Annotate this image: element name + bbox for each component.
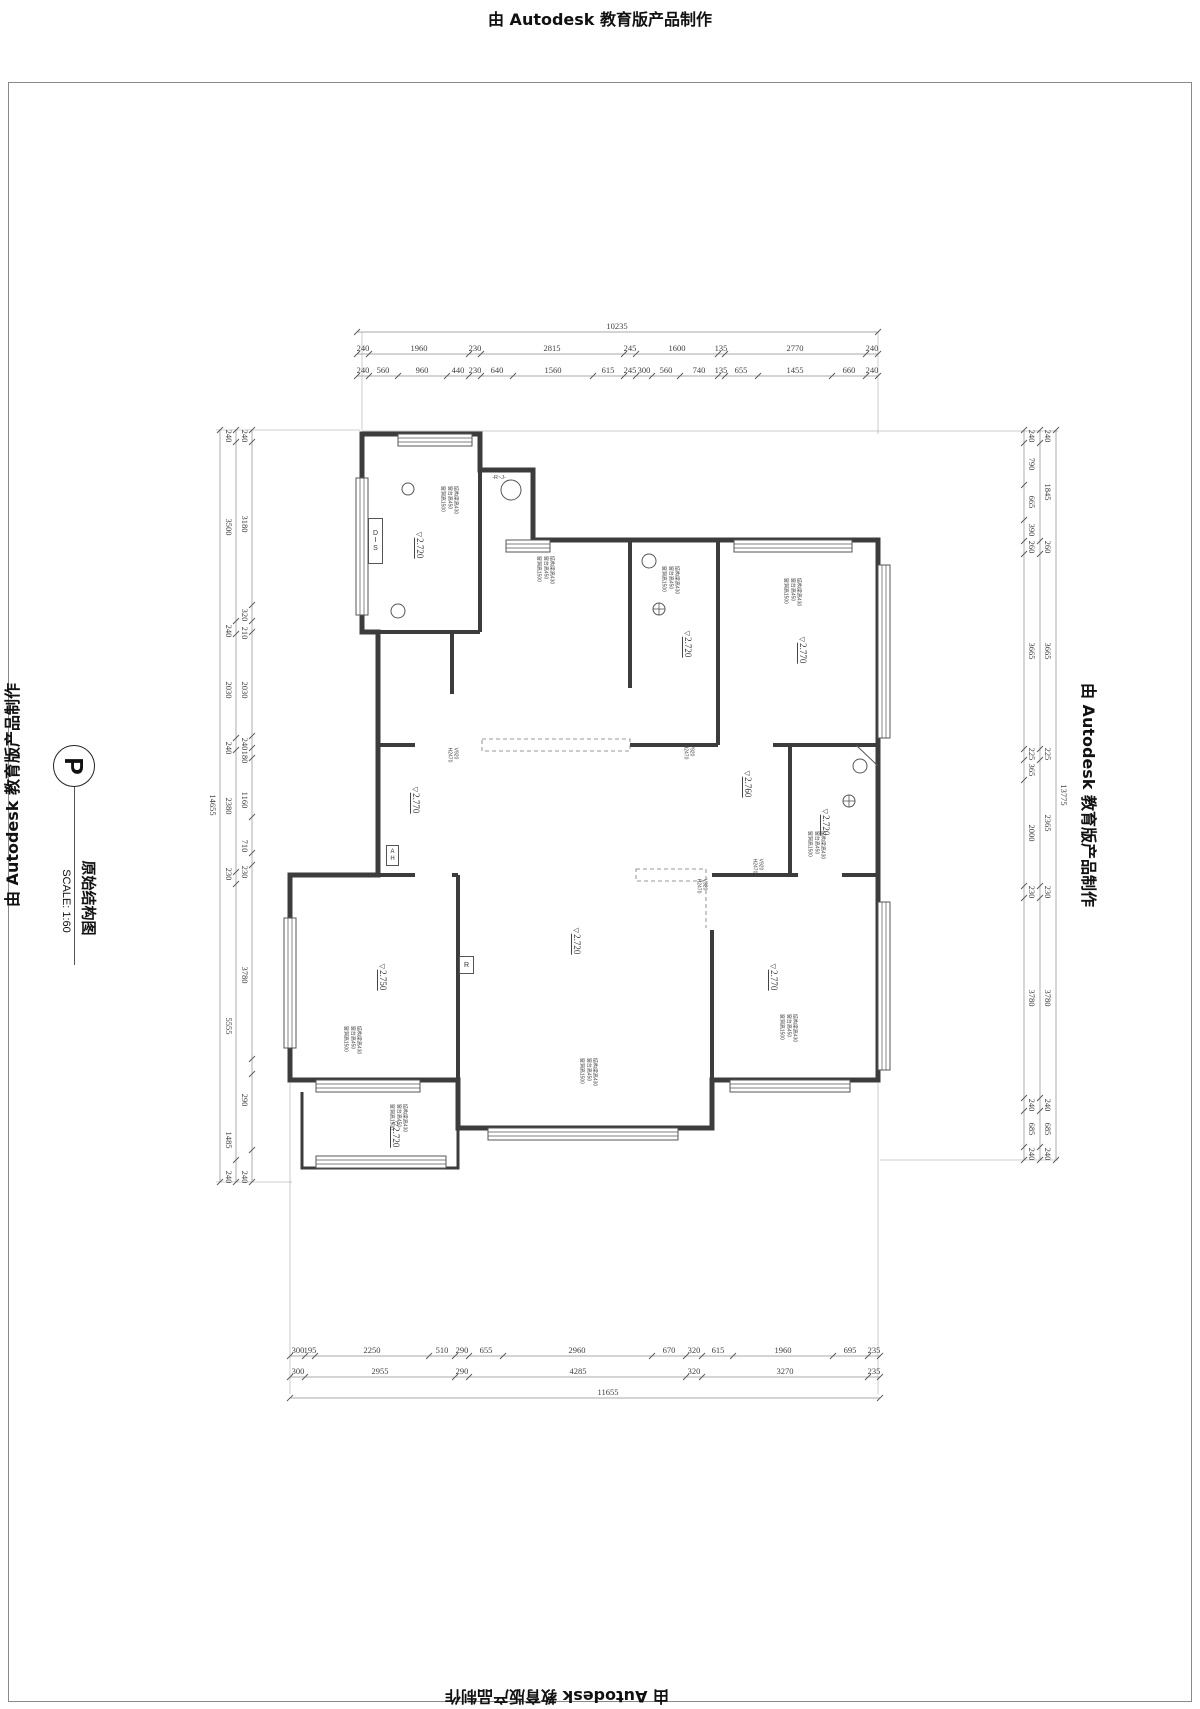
drawing-title: 原始结构图 — [79, 860, 100, 935]
floor-plan-canvas — [0, 0, 1200, 1709]
dimension-label: 245 — [624, 365, 637, 375]
dimension-label: 300 — [292, 1345, 305, 1355]
window — [398, 434, 472, 446]
dimension-label: 1485 — [224, 1132, 234, 1149]
dimension-label: 210 — [240, 627, 250, 640]
window-annotation: 结构梁高430窗台高450窗洞高1500 — [389, 1104, 408, 1132]
title-block-badge: P — [53, 745, 95, 787]
dimension-label: 225 — [1027, 748, 1037, 761]
dimension-label: 230 — [240, 866, 250, 879]
window — [878, 565, 890, 738]
dimension-label: 3665 — [1043, 643, 1053, 660]
dimension-label: 240 — [240, 1171, 250, 1184]
dimension-label: 685 — [1027, 1123, 1037, 1136]
dimension-label: 240 — [1027, 1099, 1037, 1112]
watermark-right: 由 Autodesk 教育版产品制作 — [1078, 683, 1102, 907]
dimension-label: 320 — [688, 1345, 701, 1355]
dimension-label: 615 — [712, 1345, 725, 1355]
fixture-line — [856, 745, 878, 766]
dimension-label: 660 — [843, 365, 856, 375]
dimension-label: 2365 — [1043, 815, 1053, 832]
dimension-label: 290 — [456, 1366, 469, 1376]
dimension-label: 240 — [866, 365, 879, 375]
dimension-label: 685 — [1043, 1123, 1053, 1136]
dimension-label: 14655 — [208, 794, 218, 815]
dimension-label: 230 — [1027, 886, 1037, 899]
window — [316, 1080, 420, 1092]
dimension-label: 240 — [1043, 1148, 1053, 1161]
level-value: 2.760 — [742, 777, 753, 797]
fixture-circle — [402, 483, 414, 495]
dimension-label: 655 — [735, 365, 748, 375]
dimension-label: 2030 — [224, 682, 234, 699]
level-mark: ▽2.720 — [415, 532, 425, 559]
opening-annotation: V920H2470 — [751, 859, 764, 874]
dimension-label: 320 — [240, 609, 250, 622]
dimension-label: 240 — [1043, 430, 1053, 443]
dimension-label: 230 — [224, 868, 234, 881]
dimension-label: 240 — [1043, 1099, 1053, 1112]
dimension-label: 230 — [469, 343, 482, 353]
dimension-label: 135 — [715, 343, 728, 353]
level-triangle-icon: ▽ — [798, 637, 806, 642]
dimension-label: 1960 — [411, 343, 428, 353]
level-value: 2.770 — [797, 643, 808, 663]
dimension-label: 240 — [240, 430, 250, 443]
level-triangle-icon: ▽ — [683, 631, 691, 636]
dimension-label: 240 — [224, 1171, 234, 1184]
level-mark: ▽2.770 — [798, 637, 808, 664]
watermark-top: 由 Autodesk 教育版产品制作 — [488, 6, 712, 30]
dimension-label: 240 — [1027, 1148, 1037, 1161]
dimension-label: 790 — [1027, 458, 1037, 471]
dimension-label: 560 — [660, 365, 673, 375]
fixture-circle — [501, 480, 521, 500]
riser-box-label: R — [459, 956, 474, 974]
dis-label: DIS — [368, 518, 383, 564]
dimension-label: 4285 — [570, 1366, 587, 1376]
fixture-circle — [391, 604, 405, 618]
dimension-label: 300 — [638, 365, 651, 375]
window — [284, 918, 296, 1048]
level-triangle-icon: ▽ — [821, 809, 829, 814]
dimension-label: 2250 — [364, 1345, 381, 1355]
window — [316, 1156, 446, 1168]
window-annotation: 结构梁高430窗台高450窗洞高1500 — [661, 566, 680, 594]
dimension-label: 560 — [377, 365, 390, 375]
dimension-label: 230 — [1043, 886, 1053, 899]
fixture-circle — [642, 554, 656, 568]
dimension-label: 1600 — [669, 343, 686, 353]
dimension-label: 240 — [866, 343, 879, 353]
dimension-label: 240 — [357, 343, 370, 353]
level-mark: ▽2.720 — [683, 631, 693, 658]
level-triangle-icon: ▽ — [378, 964, 386, 969]
dimension-label: 2000 — [1027, 825, 1037, 842]
dimension-label: 2955 — [372, 1366, 389, 1376]
dimension-label: 290 — [240, 1094, 250, 1107]
window — [878, 902, 890, 1070]
dimension-label: 2770 — [787, 343, 804, 353]
dimension-label: 1160 — [240, 792, 250, 809]
level-mark: ▽2.750 — [378, 964, 388, 991]
dimension-label: 230 — [469, 365, 482, 375]
dimension-label: 390 — [1027, 524, 1037, 537]
dimension-label: 2960 — [569, 1345, 586, 1355]
level-value: 2.720 — [414, 538, 425, 558]
opening-annotation: V920H2470 — [446, 748, 459, 763]
level-mark: ▽2.760 — [743, 771, 753, 798]
dimension-label: 1560 — [545, 365, 562, 375]
dimension-label: 365 — [1027, 764, 1037, 777]
dimension-label: 3780 — [1027, 990, 1037, 1007]
dimension-label: 3780 — [240, 967, 250, 984]
distribution-box-label: AH — [386, 845, 399, 866]
level-triangle-icon: ▽ — [415, 532, 423, 537]
level-mark: ▽2.770 — [769, 964, 779, 991]
window — [488, 1128, 678, 1140]
dimension-label: 5555 — [224, 1018, 234, 1035]
dimension-label: 11655 — [598, 1387, 619, 1397]
window — [730, 1080, 850, 1092]
dimension-label: 710 — [240, 840, 250, 853]
dimension-label: 240 — [1027, 430, 1037, 443]
dimension-label: 13775 — [1059, 784, 1069, 805]
dimension-label: 615 — [602, 365, 615, 375]
dimension-label: 670 — [663, 1345, 676, 1355]
window-annotation: 结构梁高430窗台高450窗洞高1500 — [779, 1014, 798, 1042]
dimension-label: 225 — [1043, 748, 1053, 761]
fixture-circle — [853, 759, 867, 773]
dimension-label: 135 — [715, 365, 728, 375]
dimension-label: 1845 — [1043, 484, 1053, 501]
title-block-leader-line — [74, 787, 75, 965]
dimension-label: 695 — [844, 1345, 857, 1355]
level-value: 2.750 — [377, 970, 388, 990]
window — [734, 540, 852, 552]
window-annotation: 结构梁高430窗台高450窗洞高1500 — [536, 556, 555, 584]
dimension-label: 260 — [1043, 541, 1053, 554]
dimension-label: 1960 — [775, 1345, 792, 1355]
dimension-label: 300 — [292, 1366, 305, 1376]
level-value: 2.770 — [768, 970, 779, 990]
gas-meter-label: -R~J- — [492, 475, 506, 481]
dimension-label: 240 — [240, 738, 250, 751]
dimension-label: 240 — [357, 365, 370, 375]
dimension-label: 2815 — [544, 343, 561, 353]
dimension-label: 2030 — [240, 682, 250, 699]
window-annotation: 结构梁高430窗台高450窗洞高1500 — [343, 1026, 362, 1054]
level-value: 2.770 — [410, 793, 421, 813]
dimension-label: 640 — [491, 365, 504, 375]
window-annotation: 结构梁高430窗台高450窗洞高1500 — [440, 486, 459, 514]
level-triangle-icon: ▽ — [572, 928, 580, 933]
dimension-label: 180 — [240, 751, 250, 764]
watermark-left: 由 Autodesk 教育版产品制作 — [0, 683, 23, 907]
dimension-label: 2380 — [224, 798, 234, 815]
window-annotation: 结构梁高430窗台高450窗洞高1500 — [579, 1058, 598, 1086]
dimension-label: 10235 — [606, 321, 627, 331]
dimension-label: 3665 — [1027, 643, 1037, 660]
dimension-label: 1455 — [787, 365, 804, 375]
dimension-label: 440 — [452, 365, 465, 375]
level-value: 2.720 — [682, 637, 693, 657]
dimension-label: 960 — [416, 365, 429, 375]
dimension-label: 245 — [624, 343, 637, 353]
dimension-label: 195 — [304, 1345, 317, 1355]
window-annotation: 结构梁高430窗台高450窗洞高1500 — [807, 831, 826, 859]
dimension-label: 3780 — [1043, 990, 1053, 1007]
dimension-label: 240 — [224, 430, 234, 443]
level-mark: ▽2.770 — [411, 787, 421, 814]
level-mark: ▽2.720 — [572, 928, 582, 955]
level-triangle-icon: ▽ — [411, 787, 419, 792]
opening-dashed — [482, 739, 630, 751]
dimension-label: 290 — [456, 1345, 469, 1355]
dimension-label: 240 — [224, 742, 234, 755]
dimension-label: 665 — [1027, 496, 1037, 509]
level-value: 2.720 — [571, 934, 582, 954]
opening-annotation: V920H2470 — [695, 879, 708, 894]
level-triangle-icon: ▽ — [769, 964, 777, 969]
dimension-label: 260 — [1027, 541, 1037, 554]
dimension-label: 740 — [693, 365, 706, 375]
window-annotation: 结构梁高430窗台高450窗洞高1500 — [783, 578, 802, 606]
watermark-bottom: 由 Autodesk 教育版产品制作 — [445, 1686, 669, 1709]
dimension-label: 510 — [436, 1345, 449, 1355]
dimension-label: 240 — [224, 625, 234, 638]
dimension-label: 235 — [868, 1345, 881, 1355]
dimension-label: 3500 — [224, 519, 234, 536]
drawing-scale: SCALE: 1:60 — [60, 869, 72, 933]
level-triangle-icon: ▽ — [743, 771, 751, 776]
drawing-sheet: 由 Autodesk 教育版产品制作 由 Autodesk 教育版产品制作 由 … — [0, 0, 1200, 1709]
dimension-label: 235 — [868, 1366, 881, 1376]
window — [506, 540, 550, 552]
dimension-label: 655 — [480, 1345, 493, 1355]
dimension-label: 3180 — [240, 516, 250, 533]
dimension-label: 3270 — [777, 1366, 794, 1376]
opening-annotation: V920H2470 — [682, 745, 695, 760]
window — [356, 478, 368, 615]
dimension-label: 320 — [688, 1366, 701, 1376]
